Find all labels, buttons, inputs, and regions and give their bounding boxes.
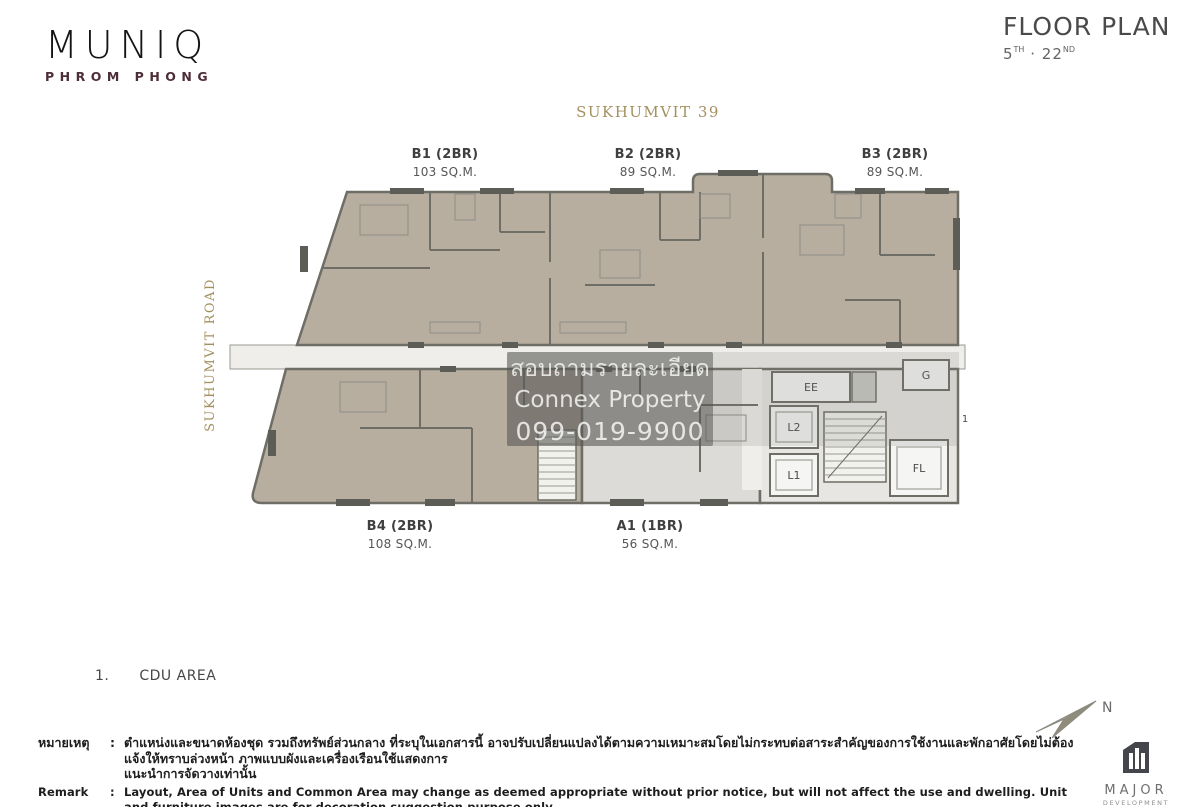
- unit-b1-name: B1 (2BR): [412, 147, 479, 162]
- developer-logo: MAJOR DEVELOPMENT: [1100, 740, 1172, 807]
- remark-en-colon: :: [110, 785, 124, 800]
- watermark-line2: Connex Property: [507, 387, 713, 414]
- unit-label-b1: B1 (2BR) 103 SQ.M.: [375, 147, 515, 179]
- floor-to-suffix: ND: [1063, 45, 1075, 54]
- floor-plan-page: EE G L2 L1 FL 1 MUNIQ PHROM PHONG FLOOR …: [0, 0, 1200, 807]
- floor-to: 22: [1042, 45, 1063, 63]
- remark-thai: หมายเหตุ : ตำแหน่งและขนาดห้องชุด รวมถึงท…: [38, 735, 1093, 782]
- floor-separator: ·: [1030, 45, 1036, 63]
- unit-label-b2: B2 (2BR) 89 SQ.M.: [578, 147, 718, 179]
- developer-subtitle: DEVELOPMENT: [1100, 799, 1172, 807]
- cdu-marker-1: 1: [962, 414, 968, 425]
- watermark: สอบถามรายละเอียด Connex Property 099-019…: [507, 356, 713, 447]
- legend-number: 1.: [95, 668, 109, 684]
- unit-b4-area: 108 SQ.M.: [330, 537, 470, 551]
- remark-thai-line1: ตำแหน่งและขนาดห้องชุด รวมถึงทรัพย์ส่วนกล…: [124, 735, 1074, 766]
- unit-label-b4: B4 (2BR) 108 SQ.M.: [330, 519, 470, 551]
- compass-north-label: N: [1102, 700, 1112, 716]
- street-label-sukhumvit-39: SUKHUMVIT 39: [558, 103, 738, 121]
- floor-from-suffix: TH: [1014, 45, 1025, 54]
- remark-en-text: Layout, Area of Units and Common Area ma…: [124, 785, 1074, 807]
- upper-units-outline: [297, 174, 958, 345]
- floor-from: 5: [1003, 45, 1014, 63]
- compass-arrow-dark: [1052, 701, 1096, 738]
- footer-remarks: หมายเหตุ : ตำแหน่งและขนาดห้องชุด รวมถึงท…: [38, 735, 1093, 807]
- watermark-phone: 099-019-9900: [507, 417, 713, 447]
- brand-name: MUNIQ: [45, 26, 265, 66]
- unit-b3-name: B3 (2BR): [862, 147, 929, 162]
- unit-label-a1: A1 (1BR) 56 SQ.M.: [580, 519, 720, 551]
- unit-b1-area: 103 SQ.M.: [375, 165, 515, 179]
- brand-logo: MUNIQ PHROM PHONG: [45, 26, 265, 84]
- developer-name: MAJOR: [1100, 783, 1172, 798]
- unit-a1-area: 56 SQ.M.: [580, 537, 720, 551]
- unit-b2-name: B2 (2BR): [615, 147, 682, 162]
- remark-en-line1: Layout, Area of Units and Common Area ma…: [124, 785, 1067, 807]
- unit-b2-area: 89 SQ.M.: [578, 165, 718, 179]
- floor-range: 5TH · 22ND: [1003, 45, 1193, 63]
- room-label-l1: L1: [787, 469, 800, 482]
- unit-label-b3: B3 (2BR) 89 SQ.M.: [825, 147, 965, 179]
- unit-b3-area: 89 SQ.M.: [825, 165, 965, 179]
- remark-thai-line2: แนะนำการจัดวางเท่านั้น: [124, 766, 256, 781]
- remark-thai-text: ตำแหน่งและขนาดห้องชุด รวมถึงทรัพย์ส่วนกล…: [124, 735, 1079, 782]
- watermark-line1: สอบถามรายละเอียด: [507, 356, 713, 383]
- remark-thai-colon: :: [110, 735, 124, 751]
- page-title: FLOOR PLAN: [1003, 12, 1193, 41]
- unit-a1-name: A1 (1BR): [617, 519, 684, 534]
- legend-label: CDU AREA: [139, 668, 216, 684]
- developer-building-icon: [1119, 740, 1153, 776]
- legend: 1. CDU AREA: [95, 668, 216, 684]
- street-label-sukhumvit-road: SUKHUMVIT ROAD: [203, 270, 221, 440]
- brand-subtitle: PHROM PHONG: [45, 69, 265, 84]
- floor-plan-header: FLOOR PLAN 5TH · 22ND: [1003, 12, 1193, 63]
- remark-thai-label: หมายเหตุ: [38, 735, 110, 751]
- remark-en-label: Remark: [38, 785, 110, 800]
- unit-b4-name: B4 (2BR): [367, 519, 434, 534]
- room-label-fl: FL: [913, 462, 926, 475]
- remark-english: Remark : Layout, Area of Units and Commo…: [38, 785, 1093, 807]
